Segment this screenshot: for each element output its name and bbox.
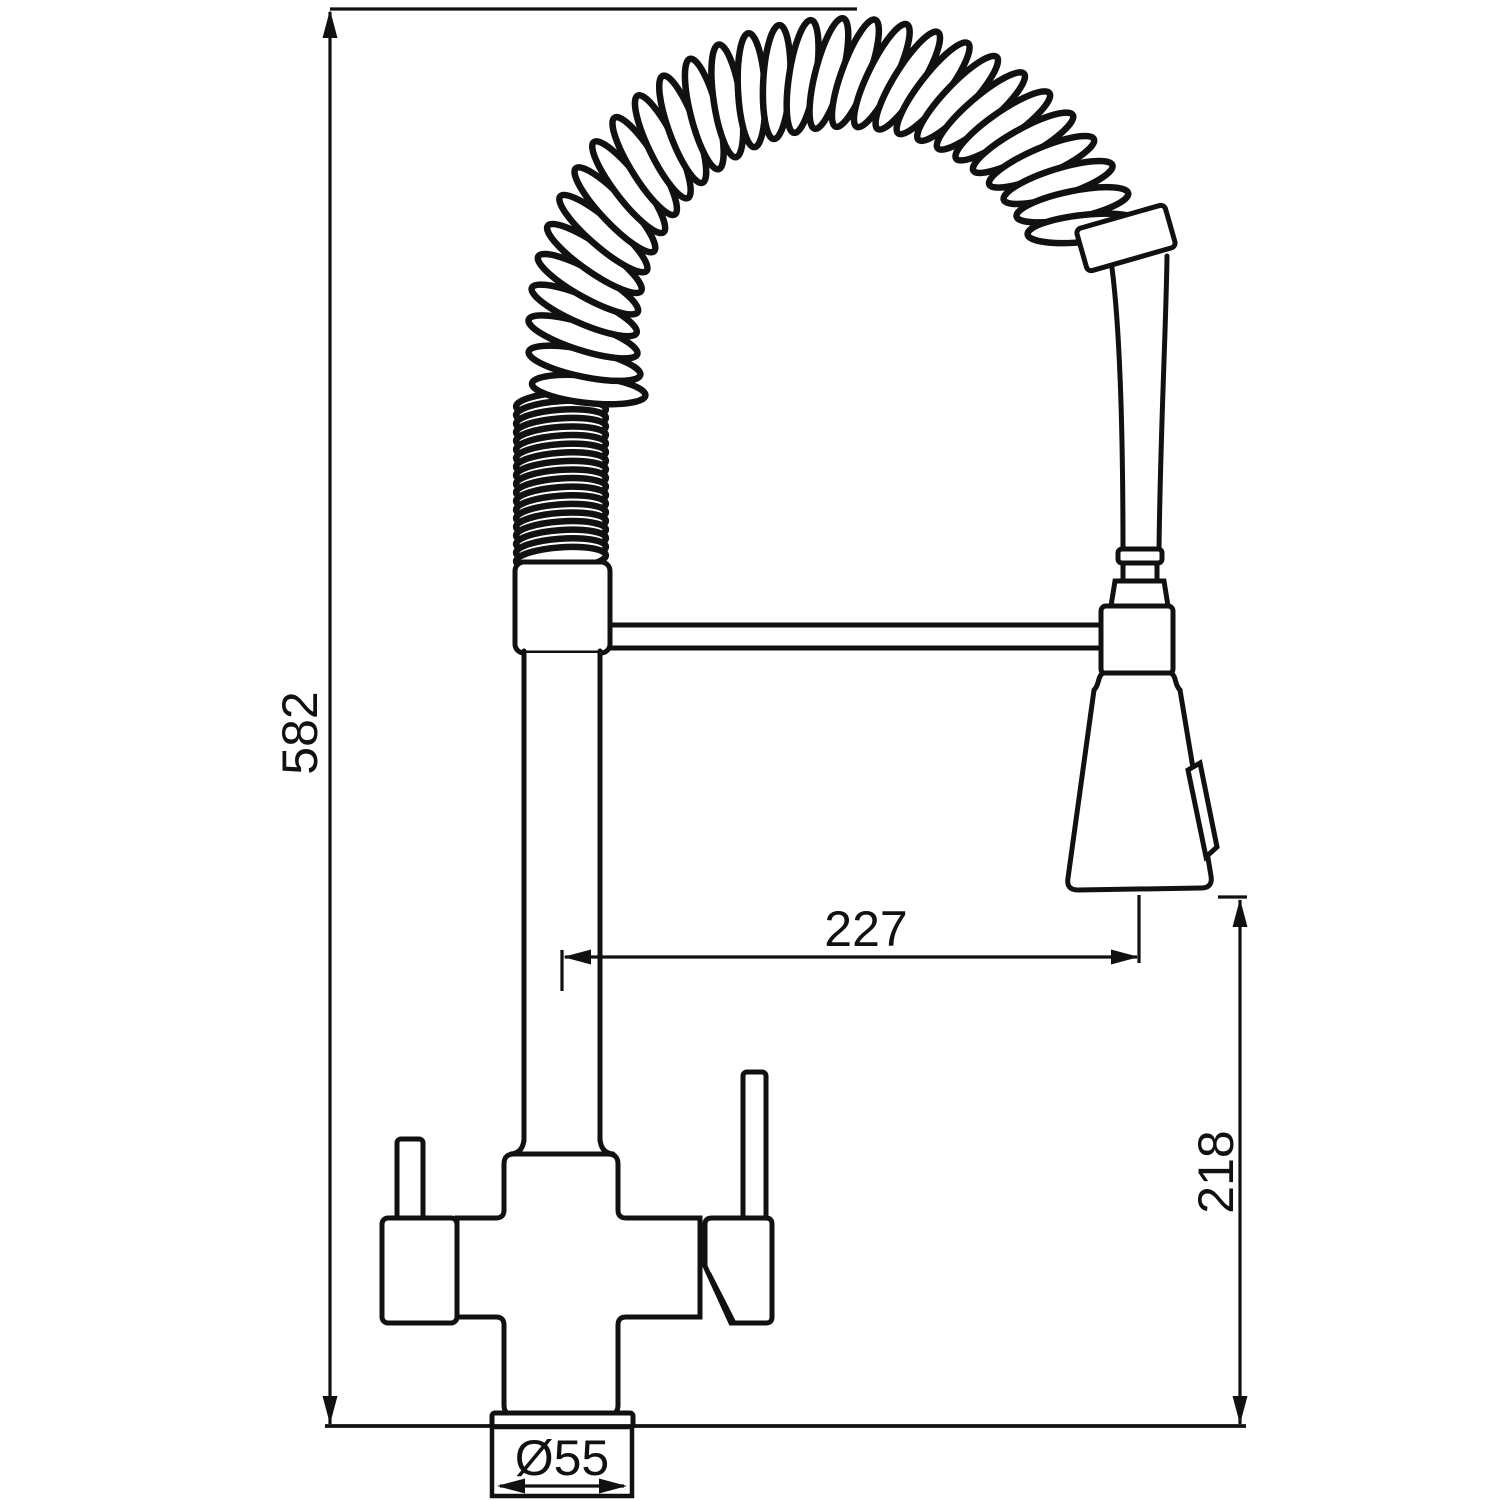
arrowhead <box>1111 950 1139 965</box>
spray-head <box>1068 549 1217 890</box>
arrowhead <box>323 10 338 38</box>
spring-coil-dense <box>515 389 606 572</box>
arrowhead <box>323 1396 338 1424</box>
overall-height-label: 582 <box>272 691 328 774</box>
spout-collar <box>515 562 610 653</box>
hose <box>1112 256 1167 553</box>
technical-drawing-page: 582 227 218 Ø55 <box>0 0 1500 1500</box>
left-valve-body <box>382 1218 457 1323</box>
right-valve-body <box>705 1218 772 1323</box>
spray-head-block <box>1101 606 1173 674</box>
spout-reach-label: 227 <box>824 901 907 957</box>
arrowhead <box>1233 899 1248 927</box>
arrowhead <box>1233 1396 1248 1424</box>
base-diameter-label: Ø55 <box>515 1430 610 1486</box>
left-handle-stem <box>397 1139 423 1223</box>
mixer-body <box>457 1154 700 1415</box>
support-arm <box>607 625 1105 648</box>
spray-head-step <box>1111 581 1168 606</box>
spray-outlet-height-label: 218 <box>1188 1130 1244 1213</box>
right-handle-lever <box>743 1072 766 1220</box>
faucet-technical-drawing: 582 227 218 Ø55 <box>0 0 1500 1500</box>
spring-coil-arch <box>525 15 1143 409</box>
spout-column <box>511 651 613 1154</box>
